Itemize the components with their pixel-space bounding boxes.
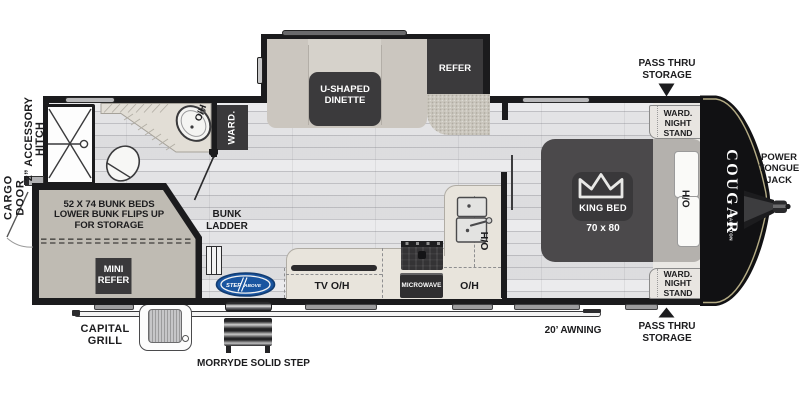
svg-text:STEP: STEP: [226, 283, 241, 289]
svg-text:ABOVE: ABOVE: [243, 283, 262, 289]
